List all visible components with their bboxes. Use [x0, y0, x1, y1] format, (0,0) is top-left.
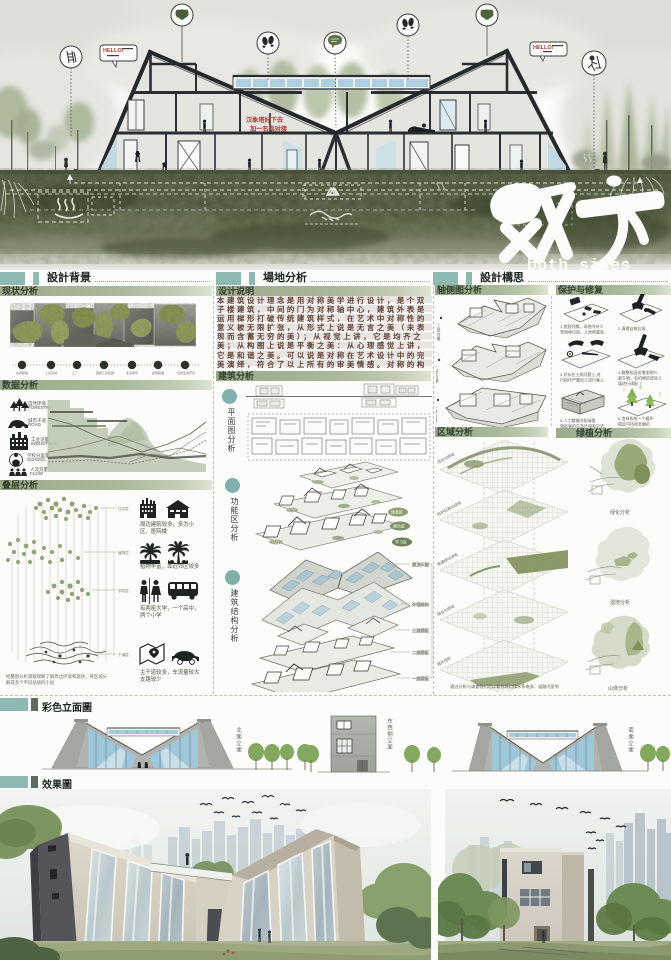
- svg-text:6.造林系统一个循环: 6.造林系统一个循环: [618, 415, 653, 421]
- svg-text:外墙结构: 外墙结构: [412, 601, 429, 608]
- svg-text:绿化分析: 绿化分析: [610, 509, 630, 516]
- svg-text:河流与绿地: 河流与绿地: [436, 451, 455, 464]
- svg-text:有两座大学，一个高中，: 有两座大学，一个高中，: [140, 604, 199, 612]
- svg-text:两个小学: 两个小学: [140, 611, 162, 619]
- svg-text:东西侧立面: 东西侧立面: [386, 717, 393, 751]
- svg-text:1.首割列猜，场地内杂少: 1.首割列猜，场地内杂少: [560, 323, 603, 329]
- svg-text:稳定可持续发展的: 稳定可持续发展的: [618, 421, 650, 427]
- svg-text:屋顶天窗: 屋顶天窗: [412, 561, 429, 568]
- svg-text:一层楼板: 一层楼板: [412, 675, 430, 682]
- svg-text:HELLO!: HELLO!: [533, 45, 554, 51]
- svg-text:娱乐区: 娱乐区: [393, 523, 405, 529]
- svg-text:支路较少: 支路较少: [140, 675, 162, 683]
- svg-text:3.对存在土质问题土,进: 3.对存在土质问题土,进: [560, 371, 600, 377]
- svg-text:2.清理自株垃圾.: 2.清理自株垃圾.: [618, 325, 646, 331]
- svg-text:街巷肌理: 街巷肌理: [152, 370, 164, 375]
- svg-text:植物丰富，靠近郊区较多: 植物丰富，靠近郊区较多: [140, 562, 200, 570]
- svg-text:自然生态环境: 自然生态环境: [177, 370, 195, 375]
- svg-text:区、医院楼: 区、医院楼: [140, 527, 168, 535]
- svg-text:北面立面: 北面立面: [235, 726, 242, 754]
- svg-text:HELLO!: HELLO!: [103, 48, 124, 54]
- svg-text:学习区: 学习区: [395, 539, 407, 545]
- svg-text:行损坏严重的土进行客土.: 行损坏严重的土进行客土.: [560, 377, 605, 383]
- svg-text:城市干道ROAD: 城市干道ROAD: [28, 417, 46, 427]
- svg-text:人流方量FLOW: 人流方量FLOW: [30, 466, 48, 476]
- svg-text:遗留工业痕迹: 遗留工业痕迹: [96, 370, 114, 375]
- svg-text:加一名指对接: 加一名指对接: [249, 125, 288, 133]
- svg-text:古树街巷: 古树街巷: [16, 370, 28, 375]
- svg-text:壤进行调配.: 壤进行调配.: [618, 380, 639, 386]
- svg-text:山体分析: 山体分析: [608, 685, 628, 692]
- svg-text:汉象塔好下去: 汉象塔好下去: [246, 116, 284, 124]
- svg-text:住宅层: 住宅层: [118, 506, 129, 511]
- svg-text:三层楼板: 三层楼板: [412, 627, 430, 634]
- svg-text:草园林垃圾，土质再富效.: 草园林垃圾，土质再富效.: [560, 329, 605, 335]
- svg-text:解成多个不同层级的小层: 解成多个不同层级的小层: [6, 679, 55, 686]
- svg-text:both sides: both sides: [527, 256, 631, 270]
- svg-text:5.人工翻锄内松绿植,: 5.人工翻锄内松绿植,: [560, 417, 596, 423]
- svg-text:休息区: 休息区: [391, 509, 403, 515]
- svg-text:湿地分析: 湿地分析: [610, 599, 630, 606]
- svg-text:干道层: 干道层: [118, 652, 129, 657]
- svg-text:周边建筑较多，多为小: 周边建筑较多，多为小: [140, 520, 195, 528]
- svg-text:学校层: 学校层: [118, 588, 129, 593]
- svg-text:主干道较多，车流量较大: 主干道较多，车流量较大: [140, 668, 200, 676]
- svg-text:一层鸟瞰: 一层鸟瞰: [436, 406, 438, 423]
- svg-text:人文活动: 人文活动: [45, 370, 57, 375]
- svg-text:腐生物，有机物的改良土: 腐生物，有机物的改良土: [618, 375, 662, 381]
- svg-text:三层鸟瞰: 三层鸟瞰: [436, 324, 441, 341]
- svg-text:南面立面: 南面立面: [627, 726, 634, 754]
- svg-text:工厂: 工厂: [72, 371, 78, 375]
- svg-text:城市组织: 城市组织: [436, 655, 452, 667]
- svg-text:4.翻整松固适增加枝叶,: 4.翻整松固适增加枝叶,: [618, 369, 658, 375]
- svg-text:通过分析与调查我们可以看到周边绿水系电多，道路内里到: 通过分析与调查我们可以看到周边绿水系电多，道路内里到: [450, 683, 559, 690]
- svg-text:二层鸟瞰: 二层鸟瞰: [436, 366, 439, 383]
- svg-text:学校分里量SCHOOL: 学校分里量SCHOOL: [27, 452, 50, 462]
- svg-text:二层楼板: 二层楼板: [412, 649, 430, 656]
- svg-text:植物层: 植物层: [118, 550, 129, 555]
- svg-text:经叠图分析观察理解了解周边环境和现状，将区域分: 经叠图分析观察理解了解周边环境和现状，将区域分: [6, 673, 108, 680]
- svg-text:生活场景: 生活场景: [126, 370, 138, 375]
